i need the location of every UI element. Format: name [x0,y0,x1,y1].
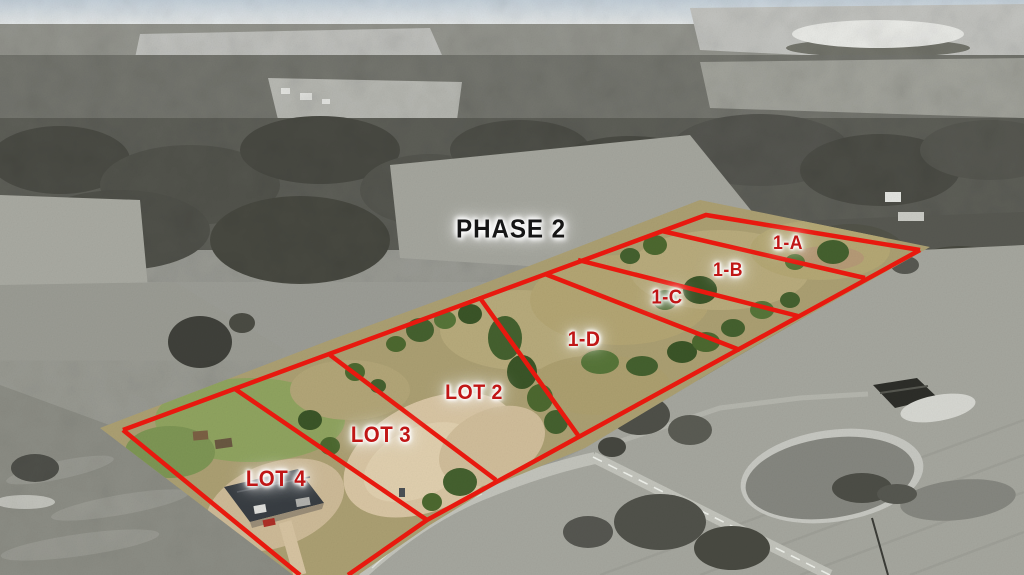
lot-label-1c: 1-C [651,287,682,310]
lot-label-1b: 1-B [713,260,743,282]
lot-label-4: LOT 4 [246,466,306,492]
lot-label-2: LOT 2 [445,381,503,405]
aerial-photo [0,0,1024,575]
phase-label: PHASE 2 [456,214,566,245]
lot-label-1d: 1-D [568,328,601,352]
lot-label-1a: 1-A [773,233,803,255]
aerial-lot-map: PHASE 2 1-A 1-B 1-C 1-D LOT 2 LOT 3 LOT … [0,0,1024,575]
lot-label-3: LOT 3 [351,422,411,448]
